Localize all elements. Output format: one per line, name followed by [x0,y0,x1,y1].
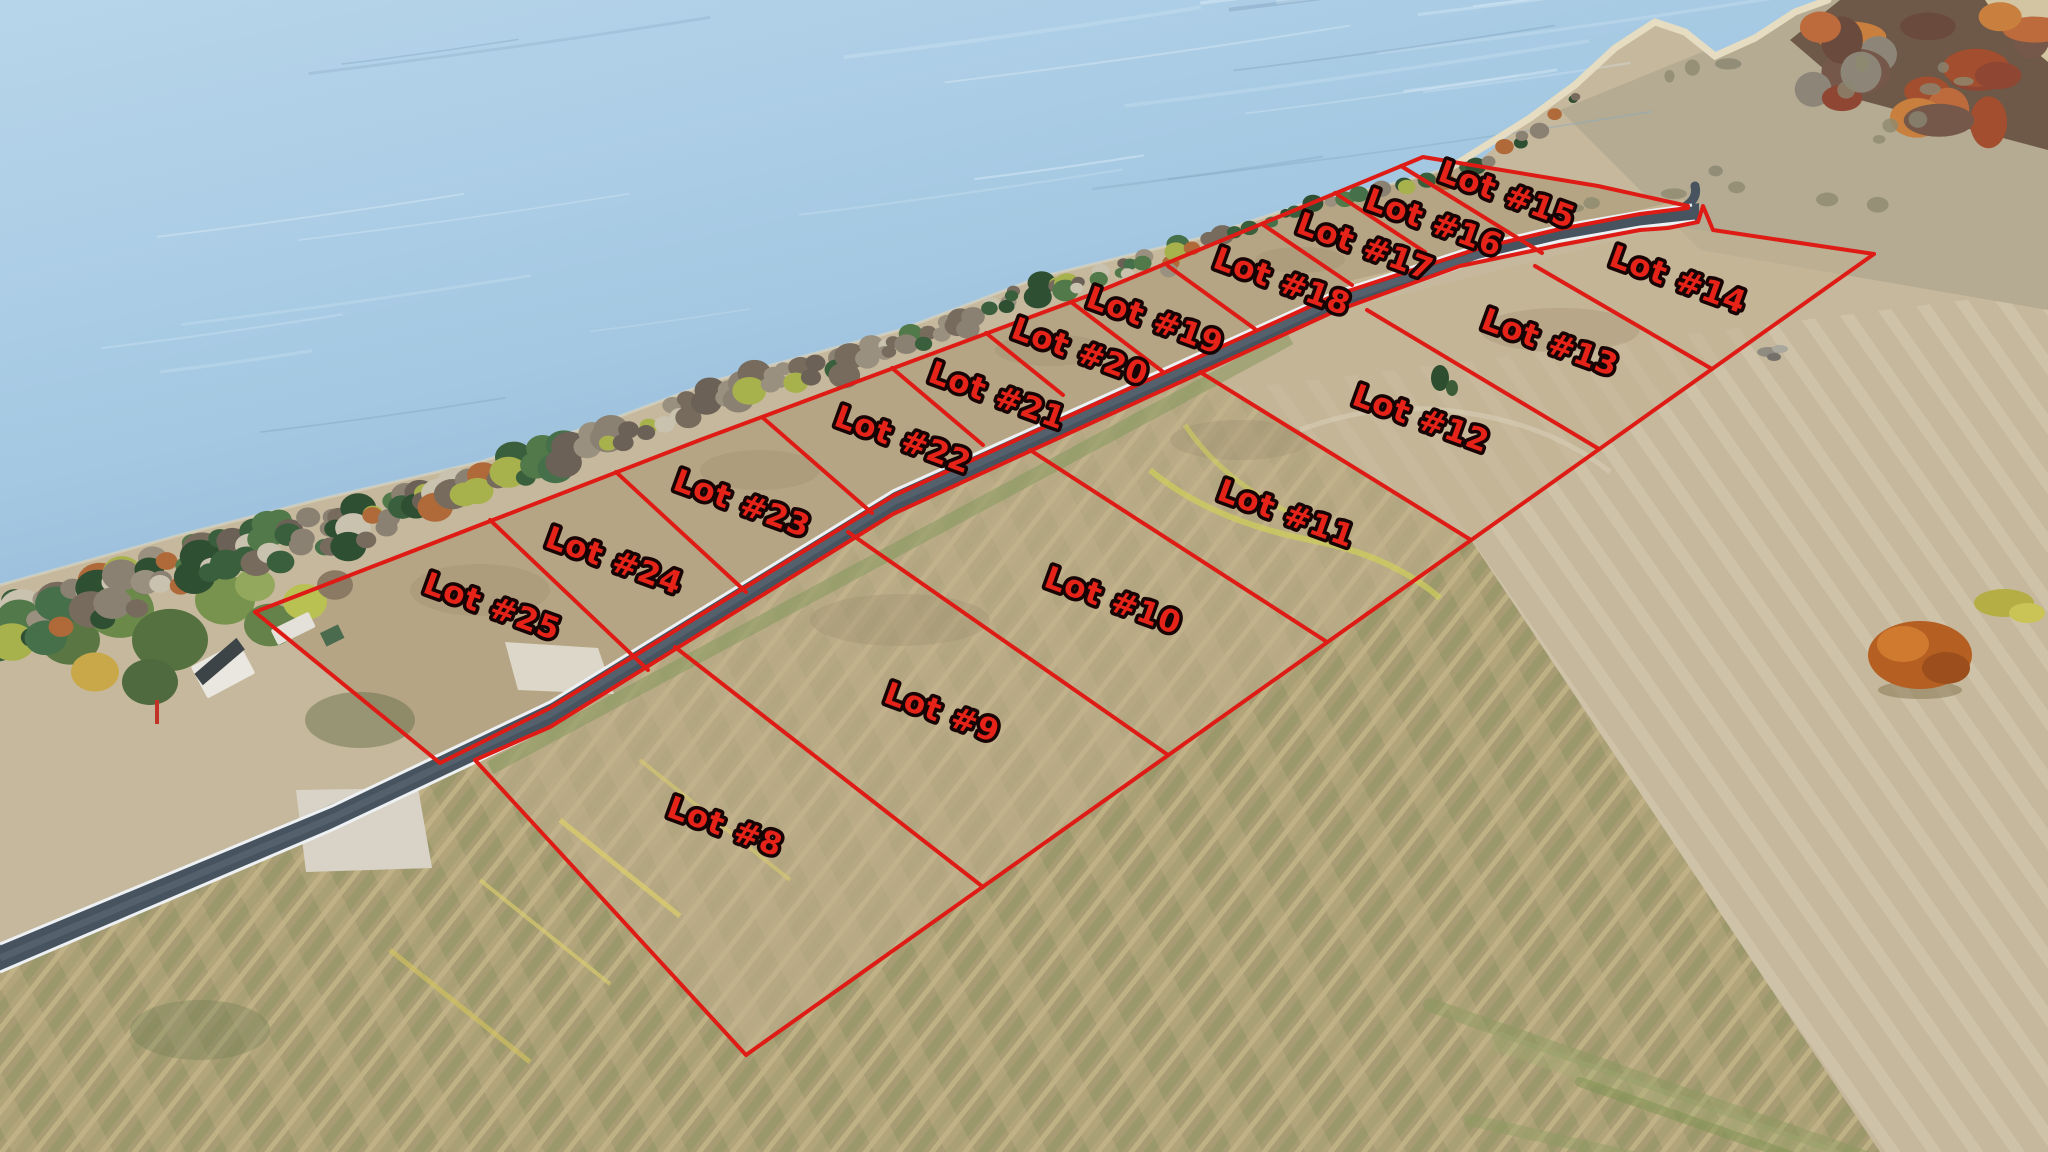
aerial-lot-map-photo: Lot #8Lot #9Lot #10Lot #11Lot #12Lot #13… [0,0,2048,1152]
scene-canvas: Lot #8Lot #9Lot #10Lot #11Lot #12Lot #13… [0,0,2048,1152]
